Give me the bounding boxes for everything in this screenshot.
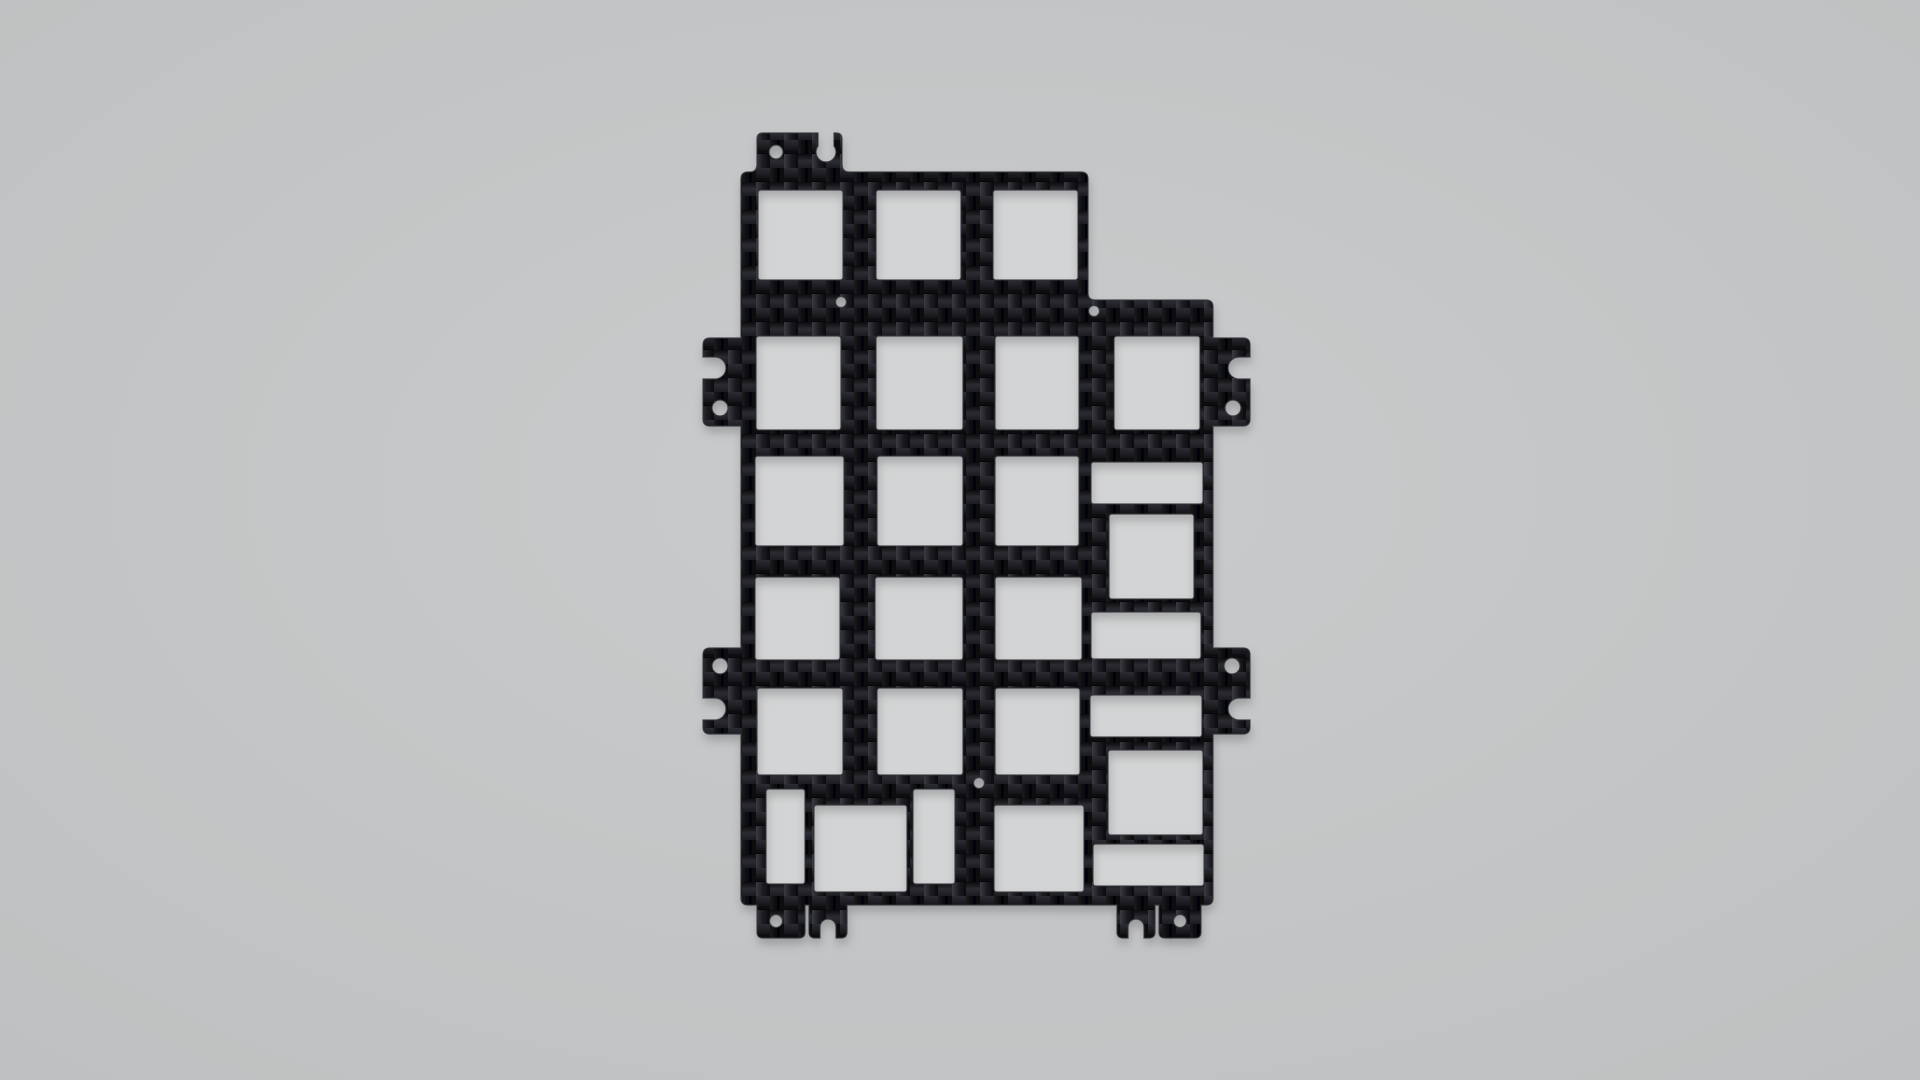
cutout-floor — [1091, 462, 1203, 504]
cutout-floor — [913, 789, 955, 884]
cutout-floor — [755, 456, 844, 546]
cutout-floor — [814, 805, 907, 892]
cutout-floor — [993, 190, 1078, 280]
cutout-floor — [766, 789, 805, 884]
cutout-floor — [995, 336, 1079, 430]
cutout-floor — [875, 577, 963, 660]
cutout-floor — [995, 688, 1080, 775]
cutout-floor — [876, 190, 961, 280]
cutout-floor — [756, 336, 841, 430]
cutout-floor — [1091, 612, 1201, 659]
cutout-floor — [876, 336, 963, 430]
cutout-floor — [1108, 750, 1203, 835]
cutout-floor — [994, 805, 1084, 892]
cutout-floor — [1090, 695, 1202, 737]
cutout-floor — [758, 190, 843, 280]
render-stage — [0, 0, 1920, 1080]
cutout-floor — [1093, 844, 1204, 886]
cutout-floor — [757, 688, 843, 775]
cutout-floor — [995, 577, 1082, 660]
plate-render-svg — [0, 0, 1920, 1080]
cutout-floor — [877, 456, 963, 546]
cutout-floor — [877, 688, 963, 775]
cutout-floor — [995, 456, 1079, 546]
cutout-floor — [755, 577, 840, 660]
cutout-floor — [1109, 514, 1194, 599]
cutout-floor — [1114, 336, 1200, 430]
